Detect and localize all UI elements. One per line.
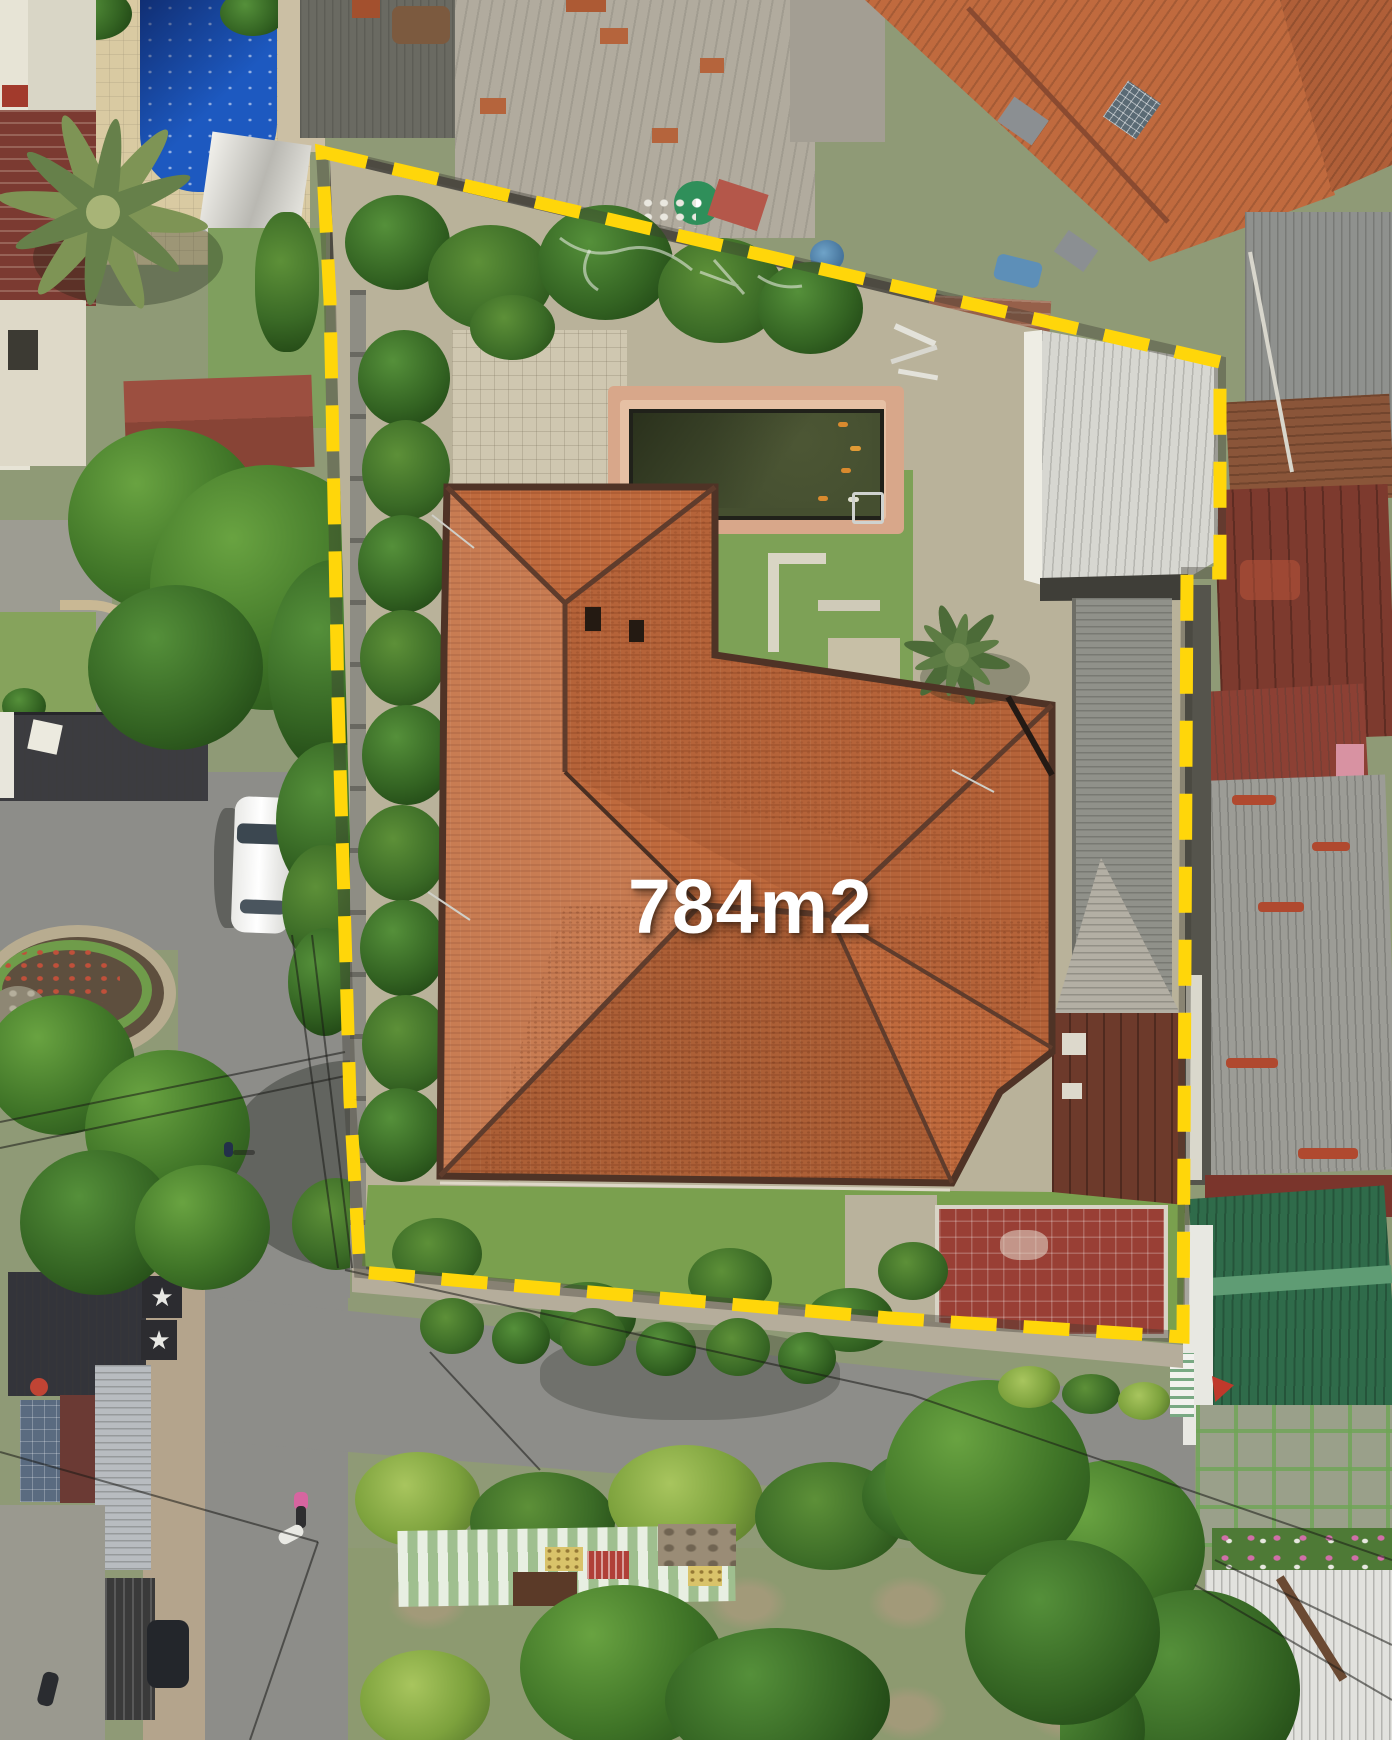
hedge-west xyxy=(362,705,452,805)
west-building-roof xyxy=(28,0,96,119)
hedge-north xyxy=(538,205,673,320)
parked-dark-car xyxy=(147,1620,189,1688)
koi-fish xyxy=(818,496,828,501)
yellow-panel xyxy=(545,1547,583,1571)
orange-tile-patch xyxy=(480,98,506,114)
ruin-wall xyxy=(768,564,779,652)
pedestrian xyxy=(224,1142,233,1157)
hedge-north xyxy=(470,295,555,360)
roof-vent-hole xyxy=(585,607,601,631)
hedge-west xyxy=(358,515,448,613)
white-label-tag xyxy=(1062,1083,1082,1099)
hedge-west xyxy=(358,805,446,901)
white-ridge xyxy=(0,712,14,798)
window-dark xyxy=(8,330,38,370)
planter-bush xyxy=(778,1332,836,1384)
planter-bush xyxy=(560,1308,626,1366)
roof-vent-hole xyxy=(629,620,644,642)
west-house xyxy=(0,300,86,466)
pedestrian-shadow xyxy=(233,1150,255,1155)
orange-tile-patch xyxy=(652,128,678,143)
hedge-west xyxy=(360,610,446,706)
koi-fish xyxy=(838,422,848,427)
grey-tile-patch xyxy=(1054,230,1098,272)
area-label: 784m2 xyxy=(628,869,873,946)
hose-reel xyxy=(30,1378,48,1396)
flower-pots xyxy=(1062,1374,1120,1414)
grass-block-pavers xyxy=(1196,1405,1392,1547)
tree-canopy xyxy=(88,585,263,750)
lawn-bush xyxy=(878,1242,948,1300)
white-wall-strip-e xyxy=(1186,975,1202,1180)
hedge-west xyxy=(358,330,450,426)
red-paint-patch xyxy=(1312,842,1350,851)
orange-tile-patch xyxy=(700,58,724,73)
white-hip-roof xyxy=(27,719,63,755)
koi-fish xyxy=(850,446,861,451)
stone-wall xyxy=(658,1524,736,1566)
car-rear-window xyxy=(240,899,286,915)
flower-pots xyxy=(1118,1382,1170,1420)
flower-bed xyxy=(1212,1528,1392,1574)
pool-ladder xyxy=(852,492,884,524)
planter-bush xyxy=(706,1318,770,1376)
red-paint-patch xyxy=(1258,902,1304,912)
patio-worn-patch xyxy=(1000,1230,1048,1260)
rust-patch xyxy=(392,6,450,44)
orange-tile-patch xyxy=(566,0,606,12)
planter-bush xyxy=(420,1298,484,1354)
grey-roof-n2 xyxy=(790,0,885,142)
hedge-west xyxy=(362,995,450,1093)
red-tile-patch xyxy=(352,0,380,18)
stone-patio xyxy=(452,330,627,502)
red-pattern-panel xyxy=(587,1551,629,1579)
hedge-north xyxy=(758,262,863,354)
hedge-west xyxy=(360,900,446,996)
tree-canopy xyxy=(135,1165,270,1290)
red-paint-patch xyxy=(1232,795,1276,805)
banana-plants xyxy=(255,212,319,352)
star-panel: ★ xyxy=(141,1320,177,1360)
flower-pots xyxy=(998,1366,1060,1408)
tree-canopy xyxy=(965,1540,1160,1725)
red-tile-roof-west xyxy=(0,110,96,306)
blue-tub xyxy=(993,253,1044,289)
hedge-west xyxy=(358,1088,444,1182)
ruin-wall xyxy=(768,553,826,564)
red-paint-patch xyxy=(1298,1148,1358,1159)
planter-bush xyxy=(492,1312,550,1364)
star-icon: ★ xyxy=(150,1284,173,1310)
planter-bush xyxy=(636,1322,696,1376)
white-label-tag xyxy=(1062,1033,1086,1055)
pavement-sw xyxy=(0,1505,105,1740)
star-icon: ★ xyxy=(147,1327,170,1353)
red-paint-patch xyxy=(1226,1058,1278,1068)
red-awning xyxy=(2,85,28,107)
palm-scrub xyxy=(360,1650,490,1740)
koi-fish xyxy=(841,468,851,473)
orange-tile-patch xyxy=(600,28,628,44)
ruin-wall xyxy=(818,600,880,611)
aerial-photo: ★ ★ xyxy=(0,0,1392,1740)
red-tile-patio xyxy=(935,1205,1168,1338)
hedge-west xyxy=(362,420,450,520)
red-panel-light-patch xyxy=(1240,560,1300,600)
